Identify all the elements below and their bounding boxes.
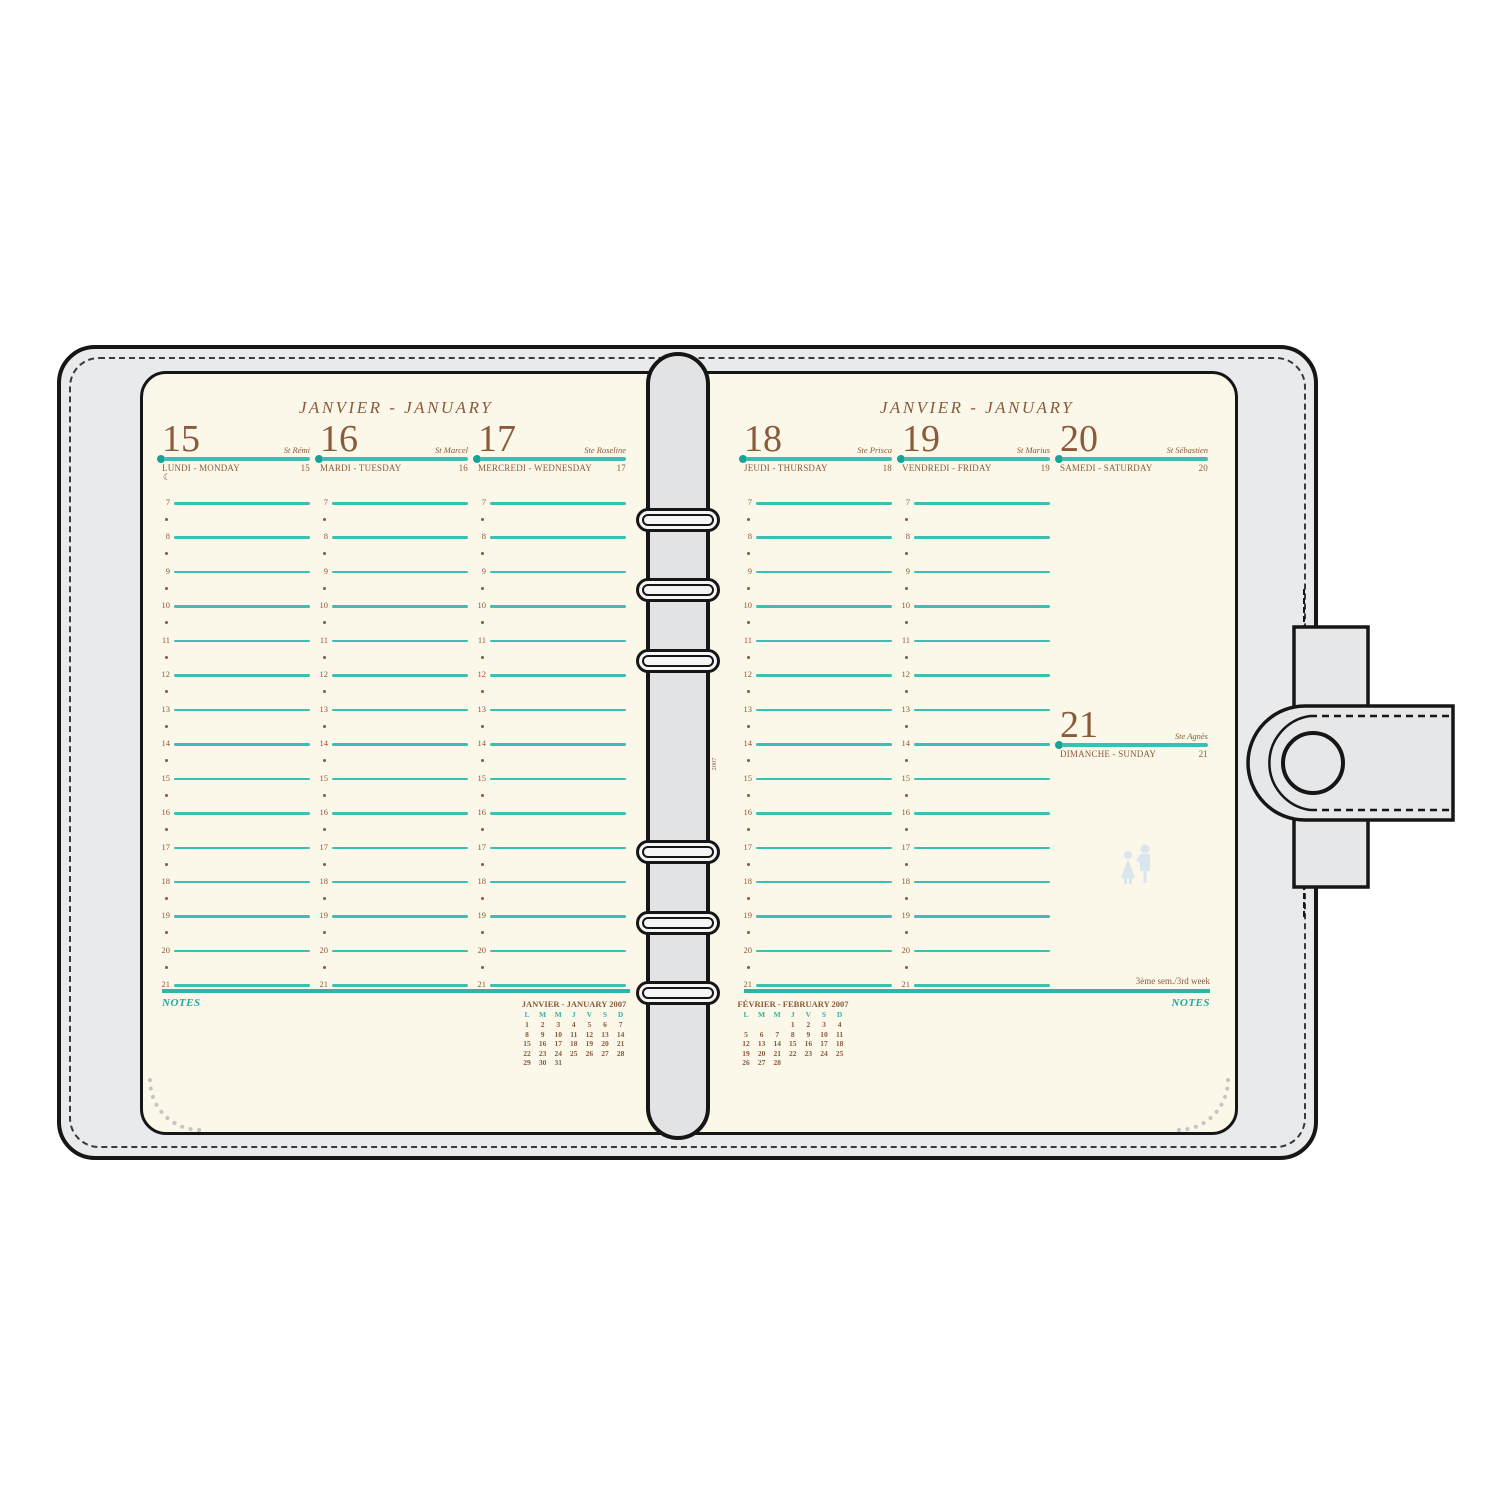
half-hour-dot (905, 828, 908, 831)
half-hour-dot (747, 725, 750, 728)
mini-calendar-weekday: M (551, 1010, 565, 1019)
mini-calendar-date: 13 (598, 1030, 612, 1039)
hour-label: 8 (738, 530, 752, 542)
half-hour-dot (747, 794, 750, 797)
binder-ring-icon (636, 840, 720, 864)
hour-line (914, 709, 1050, 712)
mini-calendar-date: 26 (739, 1058, 753, 1067)
half-hour-dot (323, 931, 326, 934)
half-hour-dot (905, 931, 908, 934)
mini-calendar-date: 14 (614, 1030, 628, 1039)
hour-line (490, 605, 626, 608)
half-hour-dot (165, 690, 168, 693)
hour-line (174, 640, 310, 643)
hour-label: 12 (472, 668, 486, 680)
mini-calendar-weekday: L (739, 1010, 753, 1019)
hour-line (914, 984, 1050, 987)
hour-label: 20 (738, 944, 752, 956)
saint-name: Ste Prisca (744, 445, 892, 455)
hour-label: 13 (314, 703, 328, 715)
binder-ring-icon (636, 508, 720, 532)
day-header-line (1062, 743, 1208, 747)
half-hour-dot (323, 759, 326, 762)
day-name-label: DIMANCHE - SUNDAY (1060, 749, 1156, 759)
mini-calendar-weekday: M (536, 1010, 550, 1019)
binder-ring-icon (636, 649, 720, 673)
mini-calendar-date: 20 (755, 1049, 769, 1058)
hour-line (914, 640, 1050, 643)
half-hour-dot (481, 863, 484, 866)
hour-line (332, 984, 468, 987)
binder-ring-icon (636, 981, 720, 1005)
page-title-left: JANVIER - JANUARY (236, 398, 556, 418)
half-hour-dot (905, 897, 908, 900)
hour-line (174, 709, 310, 712)
hour-label: 15 (156, 772, 170, 784)
hour-line (914, 881, 1050, 884)
mini-calendar-date: 9 (801, 1030, 815, 1039)
mini-calendar-title: FÉVRIER - FEBRUARY 2007 (728, 999, 858, 1009)
day-name-row: MARDI - TUESDAY16 (320, 463, 468, 473)
hour-line (174, 536, 310, 539)
mini-calendar-date: 19 (582, 1039, 596, 1048)
hour-line (490, 847, 626, 850)
mini-calendar-date: 26 (582, 1049, 596, 1058)
snap-clasp (1240, 585, 1465, 925)
mini-calendar-weekday: S (817, 1010, 831, 1019)
day-small-number: 20 (1199, 463, 1208, 473)
hour-label: 14 (156, 737, 170, 749)
mini-calendar-date: 23 (536, 1049, 550, 1058)
hour-label: 10 (738, 599, 752, 611)
hour-label: 8 (156, 530, 170, 542)
saint-name: St Marius (902, 445, 1050, 455)
hour-line (174, 984, 310, 987)
hour-label: 7 (472, 496, 486, 508)
hour-line (756, 743, 892, 746)
day-name-label: VENDREDI - FRIDAY (902, 463, 992, 473)
hour-line (332, 915, 468, 918)
hour-line (490, 674, 626, 677)
clasp-tab (1248, 706, 1453, 820)
hour-line (174, 571, 310, 574)
day-name-row: SAMEDI - SATURDAY20 (1060, 463, 1208, 473)
half-hour-dot (165, 759, 168, 762)
day-name-label: SAMEDI - SATURDAY (1060, 463, 1153, 473)
day-name-row: LUNDI - MONDAY15 (162, 463, 310, 473)
hour-label: 17 (896, 841, 910, 853)
hour-line (332, 674, 468, 677)
hour-label: 18 (156, 875, 170, 887)
hour-line (914, 605, 1050, 608)
mini-calendar-date: 7 (770, 1030, 784, 1039)
hour-label: 15 (314, 772, 328, 784)
mini-calendar-date: 4 (567, 1020, 581, 1029)
half-hour-dot (905, 966, 908, 969)
notes-label-left: NOTES (162, 997, 201, 1009)
mini-calendar-date: 3 (817, 1020, 831, 1029)
half-hour-dot (165, 966, 168, 969)
day-name-label: MARDI - TUESDAY (320, 463, 402, 473)
day-header-line (746, 457, 892, 461)
hour-label: 10 (472, 599, 486, 611)
half-hour-dot (905, 863, 908, 866)
mini-calendar-date: 31 (551, 1058, 565, 1067)
day-header-line (164, 457, 310, 461)
hour-label: 16 (156, 806, 170, 818)
mini-calendar-date: 19 (739, 1049, 753, 1058)
half-hour-dot (481, 897, 484, 900)
mini-calendar-date: 7 (614, 1020, 628, 1029)
hour-label: 18 (314, 875, 328, 887)
half-hour-dot (165, 725, 168, 728)
mini-calendar-date: 21 (770, 1049, 784, 1058)
page-title-right: JANVIER - JANUARY (817, 398, 1137, 418)
mini-calendar-date: 11 (567, 1030, 581, 1039)
hour-line (490, 571, 626, 574)
hour-line (756, 812, 892, 815)
hour-line (490, 502, 626, 505)
half-hour-dot (481, 759, 484, 762)
half-hour-dot (323, 828, 326, 831)
hour-label: 12 (156, 668, 170, 680)
half-hour-dot (747, 759, 750, 762)
day-name-row: VENDREDI - FRIDAY19 (902, 463, 1050, 473)
spine-ref-line2: 2007 (711, 714, 719, 814)
hour-line (756, 847, 892, 850)
half-hour-dot (905, 656, 908, 659)
hour-label: 9 (156, 565, 170, 577)
half-hour-dot (323, 621, 326, 624)
mini-calendar-date: 8 (786, 1030, 800, 1039)
hour-label: 19 (472, 909, 486, 921)
hour-label: 18 (896, 875, 910, 887)
hour-line (490, 640, 626, 643)
mini-calendar-date: 18 (833, 1039, 847, 1048)
hour-line (756, 536, 892, 539)
hour-label: 13 (896, 703, 910, 715)
mini-calendar-weekday: D (833, 1010, 847, 1019)
mini-calendar-date: 13 (755, 1039, 769, 1048)
organizer-product-photo: 15St RémiLUNDI - MONDAY15☾16St MarcelMAR… (0, 0, 1500, 1500)
hour-label: 11 (156, 634, 170, 646)
hour-line (914, 778, 1050, 781)
mini-calendar-date: 12 (739, 1039, 753, 1048)
hour-label: 16 (472, 806, 486, 818)
hour-line (914, 674, 1050, 677)
hour-line (174, 950, 310, 953)
hour-label: 8 (896, 530, 910, 542)
half-hour-dot (323, 897, 326, 900)
mini-calendar-date: 1 (520, 1020, 534, 1029)
hour-label: 12 (314, 668, 328, 680)
hour-label: 10 (314, 599, 328, 611)
half-hour-dot (165, 931, 168, 934)
half-hour-dot (747, 828, 750, 831)
mini-calendar-weekday: M (770, 1010, 784, 1019)
half-hour-dot (747, 690, 750, 693)
clasp-strap-bottom (1294, 817, 1368, 887)
saint-name: Ste Agnès (1060, 731, 1208, 741)
notes-label-right: NOTES (1060, 997, 1210, 1009)
hour-line (756, 709, 892, 712)
hour-line (756, 502, 892, 505)
hour-label: 8 (314, 530, 328, 542)
hour-label: 11 (896, 634, 910, 646)
half-hour-dot (481, 725, 484, 728)
hour-label: 17 (156, 841, 170, 853)
hour-line (490, 881, 626, 884)
day-header-line (1062, 457, 1208, 461)
hour-line (490, 709, 626, 712)
half-hour-dot (905, 690, 908, 693)
hour-line (490, 984, 626, 987)
binder-ring-icon (636, 911, 720, 935)
half-hour-dot (323, 587, 326, 590)
hour-line (332, 847, 468, 850)
half-hour-dot (323, 966, 326, 969)
half-hour-dot (323, 725, 326, 728)
mini-calendar-weekday: M (755, 1010, 769, 1019)
mini-calendar-date: 28 (614, 1049, 628, 1058)
mini-calendar-date: 11 (833, 1030, 847, 1039)
half-hour-dot (323, 863, 326, 866)
mini-calendar-date: 17 (551, 1039, 565, 1048)
hour-label: 17 (738, 841, 752, 853)
hour-line (332, 571, 468, 574)
mini-calendar-weekday: D (614, 1010, 628, 1019)
hour-line (756, 674, 892, 677)
half-hour-dot (481, 828, 484, 831)
hour-label: 17 (472, 841, 486, 853)
hour-line (174, 778, 310, 781)
half-hour-dot (747, 656, 750, 659)
mini-calendar-weekday: S (598, 1010, 612, 1019)
mini-calendar-date: 28 (770, 1058, 784, 1067)
hour-line (174, 847, 310, 850)
day-name-label: JEUDI - THURSDAY (744, 463, 828, 473)
hour-line (490, 812, 626, 815)
half-hour-dot (747, 552, 750, 555)
mini-calendar-date: 25 (833, 1049, 847, 1058)
half-hour-dot (747, 587, 750, 590)
half-hour-dot (481, 656, 484, 659)
day-name-label: MERCREDI - WEDNESDAY (478, 463, 592, 473)
half-hour-dot (905, 794, 908, 797)
hour-label: 9 (314, 565, 328, 577)
mini-calendar-date: 27 (755, 1058, 769, 1067)
mini-calendar-date: 20 (598, 1039, 612, 1048)
hour-line (756, 915, 892, 918)
mini-calendar-weekday: V (801, 1010, 815, 1019)
mini-calendar-date: 15 (786, 1039, 800, 1048)
hour-line (756, 950, 892, 953)
hour-label: 16 (314, 806, 328, 818)
saint-name: St Sébastien (1060, 445, 1208, 455)
hour-line (914, 915, 1050, 918)
half-hour-dot (481, 587, 484, 590)
mini-calendar-date: 5 (739, 1030, 753, 1039)
hour-label: 19 (156, 909, 170, 921)
half-hour-dot (905, 725, 908, 728)
mini-calendar-weekday: J (786, 1010, 800, 1019)
half-hour-dot (165, 828, 168, 831)
hour-line (756, 984, 892, 987)
half-hour-dot (165, 621, 168, 624)
mini-calendar-date: 22 (786, 1049, 800, 1058)
hour-label: 9 (738, 565, 752, 577)
mini-calendar-date: 9 (536, 1030, 550, 1039)
hour-label: 14 (472, 737, 486, 749)
hour-line (756, 778, 892, 781)
half-hour-dot (747, 621, 750, 624)
day-small-number: 19 (1041, 463, 1050, 473)
hour-line (332, 640, 468, 643)
hour-line (332, 812, 468, 815)
hour-label: 17 (314, 841, 328, 853)
half-hour-dot (747, 897, 750, 900)
half-hour-dot (905, 518, 908, 521)
hour-line (490, 950, 626, 953)
hour-label: 14 (738, 737, 752, 749)
day-name-row: MERCREDI - WEDNESDAY17 (478, 463, 626, 473)
saint-name: St Rémi (162, 445, 310, 455)
half-hour-dot (165, 587, 168, 590)
mini-calendar-date: 18 (567, 1039, 581, 1048)
mini-calendar-date: 4 (833, 1020, 847, 1029)
hour-label: 18 (738, 875, 752, 887)
hour-line (332, 743, 468, 746)
hour-line (332, 950, 468, 953)
hour-label: 9 (896, 565, 910, 577)
hour-line (490, 778, 626, 781)
mini-calendar-date: 30 (536, 1058, 550, 1067)
mini-calendar-weekday: J (567, 1010, 581, 1019)
half-hour-dot (481, 931, 484, 934)
day-name-row: DIMANCHE - SUNDAY21 (1060, 749, 1208, 759)
hour-line (490, 915, 626, 918)
hour-line (756, 605, 892, 608)
day-small-number: 18 (883, 463, 892, 473)
hour-line (914, 502, 1050, 505)
hour-line (332, 536, 468, 539)
half-hour-dot (323, 656, 326, 659)
half-hour-dot (165, 518, 168, 521)
hour-line (332, 881, 468, 884)
hour-label: 15 (738, 772, 752, 784)
mini-calendar-date: 22 (520, 1049, 534, 1058)
half-hour-dot (905, 759, 908, 762)
hour-line (756, 881, 892, 884)
mini-calendar-date: 3 (551, 1020, 565, 1029)
hour-label: 20 (896, 944, 910, 956)
hour-label: 9 (472, 565, 486, 577)
mini-calendar-date: 6 (755, 1030, 769, 1039)
day-small-number: 16 (459, 463, 468, 473)
hour-label: 20 (156, 944, 170, 956)
hour-label: 15 (472, 772, 486, 784)
day-small-number: 21 (1199, 749, 1208, 759)
binder-spine (646, 352, 710, 1140)
hour-label: 14 (314, 737, 328, 749)
hour-label: 11 (314, 634, 328, 646)
half-hour-dot (323, 552, 326, 555)
hour-label: 12 (738, 668, 752, 680)
hour-label: 16 (896, 806, 910, 818)
mini-calendar-title: JANVIER - JANUARY 2007 (509, 999, 639, 1009)
half-hour-dot (905, 552, 908, 555)
hour-label: 19 (738, 909, 752, 921)
hour-line (914, 536, 1050, 539)
mini-calendar-date: 6 (598, 1020, 612, 1029)
hour-label: 20 (472, 944, 486, 956)
day-header-line (322, 457, 468, 461)
hour-line (914, 571, 1050, 574)
hour-line (490, 536, 626, 539)
hour-label: 11 (738, 634, 752, 646)
hour-line (914, 812, 1050, 815)
saint-name: Ste Roseline (478, 445, 626, 455)
hour-label: 7 (896, 496, 910, 508)
week-number-label: 3ème sem./3rd week (1040, 976, 1210, 986)
half-hour-dot (165, 863, 168, 866)
hour-line (756, 640, 892, 643)
mini-calendar-date: 2 (801, 1020, 815, 1029)
half-hour-dot (323, 690, 326, 693)
mini-calendar-date: 8 (520, 1030, 534, 1039)
hour-label: 11 (472, 634, 486, 646)
mini-calendar-date: 24 (817, 1049, 831, 1058)
mini-calendar-date: 27 (598, 1049, 612, 1058)
hour-label: 7 (156, 496, 170, 508)
mini-calendar-weekday: V (582, 1010, 596, 1019)
hour-line (174, 674, 310, 677)
hour-label: 19 (314, 909, 328, 921)
half-hour-dot (747, 931, 750, 934)
hour-label: 19 (896, 909, 910, 921)
half-hour-dot (165, 897, 168, 900)
mini-calendar-date: 16 (536, 1039, 550, 1048)
half-hour-dot (747, 863, 750, 866)
day-header-line (904, 457, 1050, 461)
mini-calendar-date: 14 (770, 1039, 784, 1048)
bottom-rule-left (162, 989, 630, 993)
half-hour-dot (165, 794, 168, 797)
half-hour-dot (481, 966, 484, 969)
half-hour-dot (905, 621, 908, 624)
mini-calendar-date: 12 (582, 1030, 596, 1039)
half-hour-dot (323, 518, 326, 521)
bottom-rule-right (744, 989, 1210, 993)
hour-line (174, 743, 310, 746)
day-small-number: 15 (301, 463, 310, 473)
hour-label: 7 (314, 496, 328, 508)
saint-name: St Marcel (320, 445, 468, 455)
mini-calendar-date: 25 (567, 1049, 581, 1058)
half-hour-dot (905, 587, 908, 590)
mini-calendar-date: 24 (551, 1049, 565, 1058)
hour-line (174, 915, 310, 918)
day-name-label: LUNDI - MONDAY (162, 463, 240, 473)
mini-calendar-date: 2 (536, 1020, 550, 1029)
half-hour-dot (323, 794, 326, 797)
mini-calendar-date: 1 (786, 1020, 800, 1029)
hour-line (174, 881, 310, 884)
mini-calendar-date: 23 (801, 1049, 815, 1058)
hour-label: 13 (472, 703, 486, 715)
mini-calendar-weekday: L (520, 1010, 534, 1019)
hour-line (490, 743, 626, 746)
